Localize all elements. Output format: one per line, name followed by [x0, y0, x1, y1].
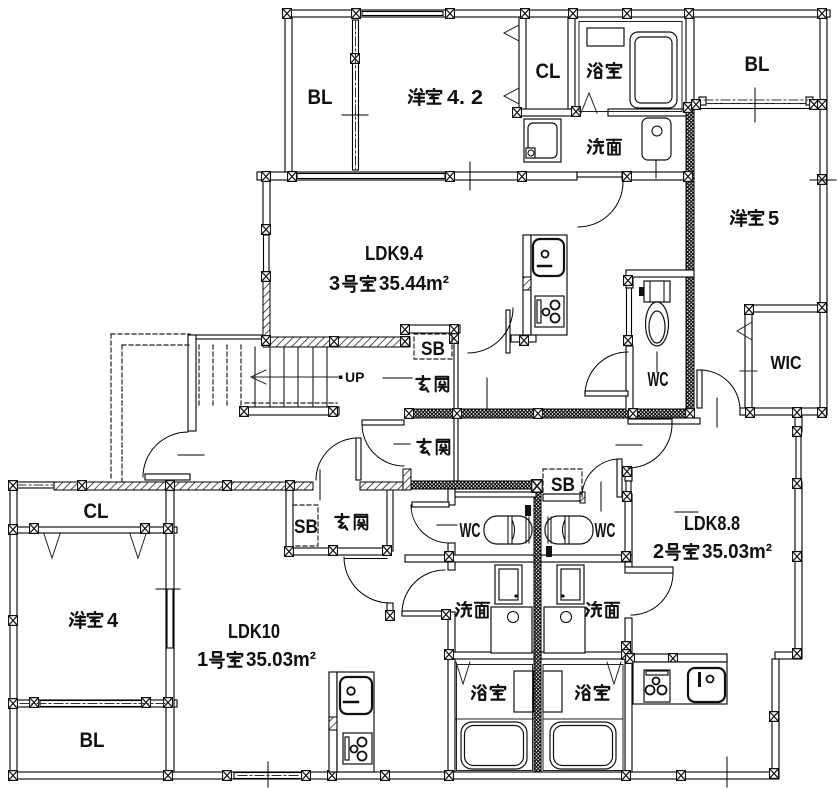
svg-text:35.03m²: 35.03m²: [246, 649, 316, 671]
svg-text:LDK10: LDK10: [228, 621, 280, 643]
svg-text:2: 2: [653, 541, 664, 563]
svg-text:CL: CL: [84, 500, 109, 523]
svg-text:SB: SB: [294, 517, 318, 538]
svg-text:BL: BL: [308, 86, 333, 109]
svg-text:SB: SB: [551, 475, 575, 496]
svg-text:LDK8.8: LDK8.8: [684, 513, 740, 535]
svg-text:4: 4: [107, 610, 119, 632]
svg-text:CL: CL: [536, 60, 561, 83]
svg-text:35.44m²: 35.44m²: [379, 273, 449, 295]
svg-text:BL: BL: [80, 729, 105, 752]
svg-text:WIC: WIC: [771, 353, 802, 373]
svg-text:WC: WC: [460, 520, 481, 542]
svg-text:WC: WC: [595, 520, 616, 542]
svg-text:1: 1: [197, 649, 208, 671]
svg-text:35.03m²: 35.03m²: [702, 541, 772, 563]
svg-text:BL: BL: [745, 53, 770, 76]
svg-text:4. 2: 4. 2: [447, 87, 483, 109]
svg-text:5: 5: [768, 208, 779, 230]
svg-text:3: 3: [329, 273, 340, 295]
svg-text:WC: WC: [648, 369, 669, 391]
svg-text:LDK9.4: LDK9.4: [365, 243, 424, 265]
svg-text:UP: UP: [345, 369, 364, 385]
svg-text:SB: SB: [421, 339, 445, 360]
